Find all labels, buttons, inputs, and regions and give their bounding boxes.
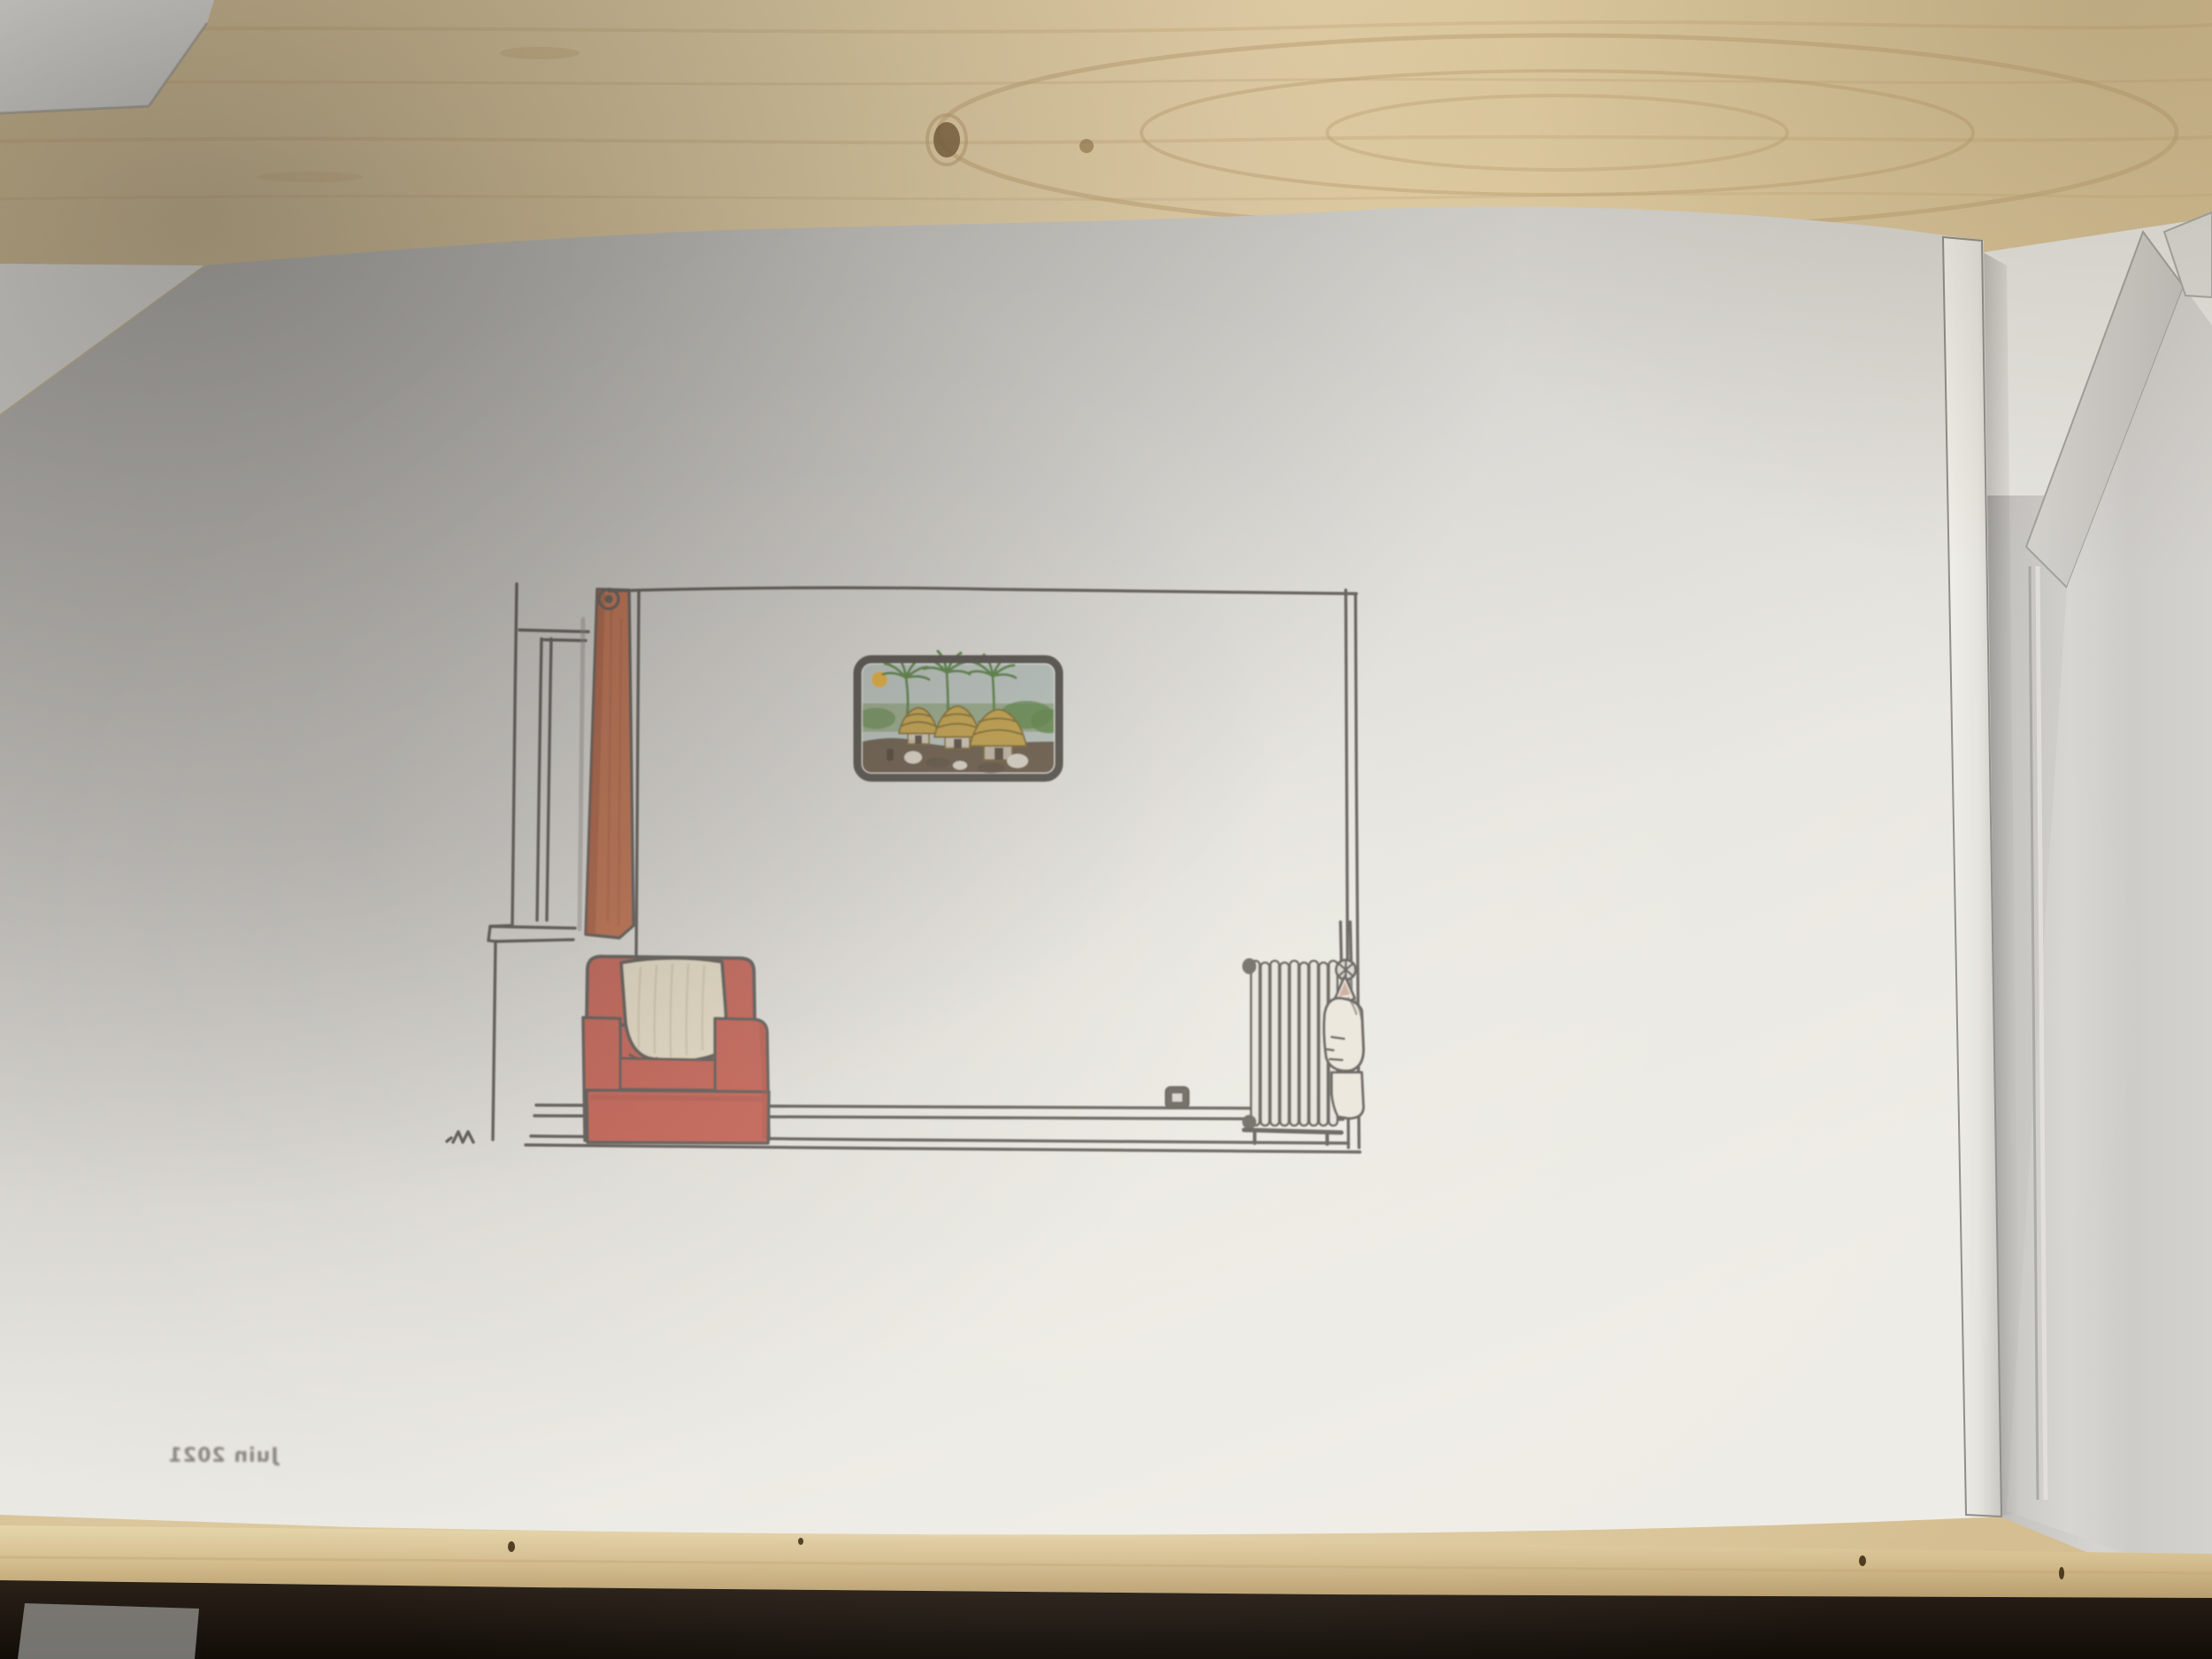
scene: Juin 2021 <box>0 0 2212 1659</box>
shadow-top-right <box>0 0 2212 1659</box>
photo-of-sketchbook: Juin 2021 <box>0 0 2212 1659</box>
